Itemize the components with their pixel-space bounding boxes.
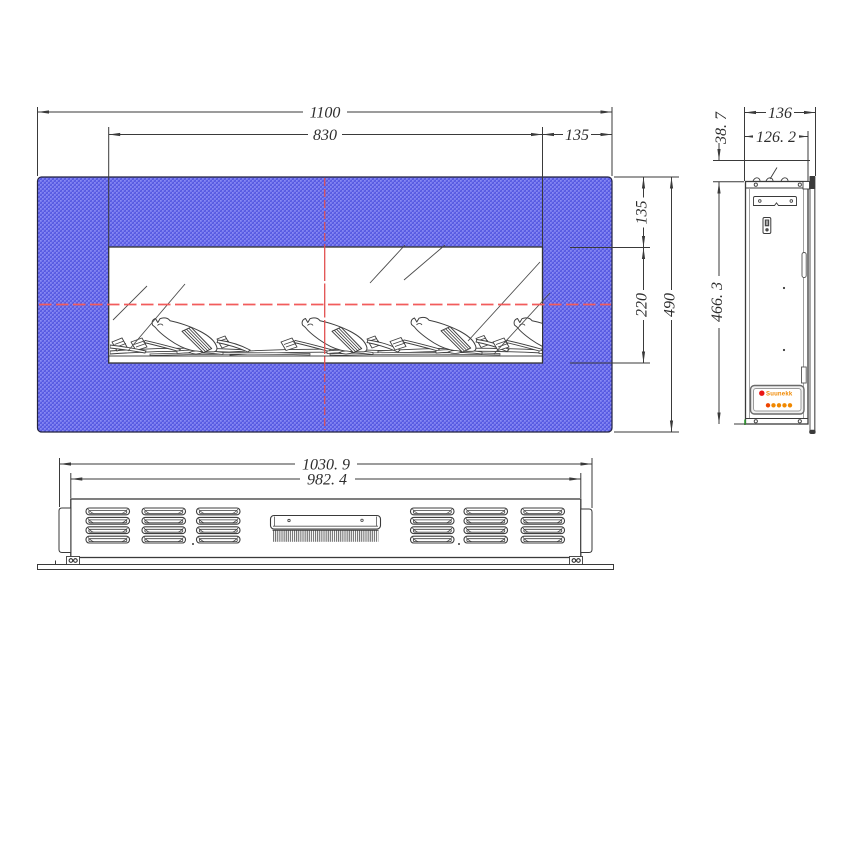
svg-text:490: 490 bbox=[662, 293, 679, 317]
svg-text:830: 830 bbox=[313, 127, 337, 144]
svg-text:982. 4: 982. 4 bbox=[307, 472, 347, 489]
svg-text:135: 135 bbox=[565, 127, 589, 144]
svg-text:1100: 1100 bbox=[310, 105, 341, 122]
svg-text:220: 220 bbox=[634, 293, 651, 317]
svg-text:126. 2: 126. 2 bbox=[756, 129, 796, 146]
svg-text:38. 7: 38. 7 bbox=[713, 111, 730, 145]
svg-text:136: 136 bbox=[768, 105, 792, 122]
svg-text:466. 3: 466. 3 bbox=[709, 282, 726, 322]
svg-text:Suunekk: Suunekk bbox=[766, 392, 793, 398]
svg-text:135: 135 bbox=[634, 201, 651, 225]
